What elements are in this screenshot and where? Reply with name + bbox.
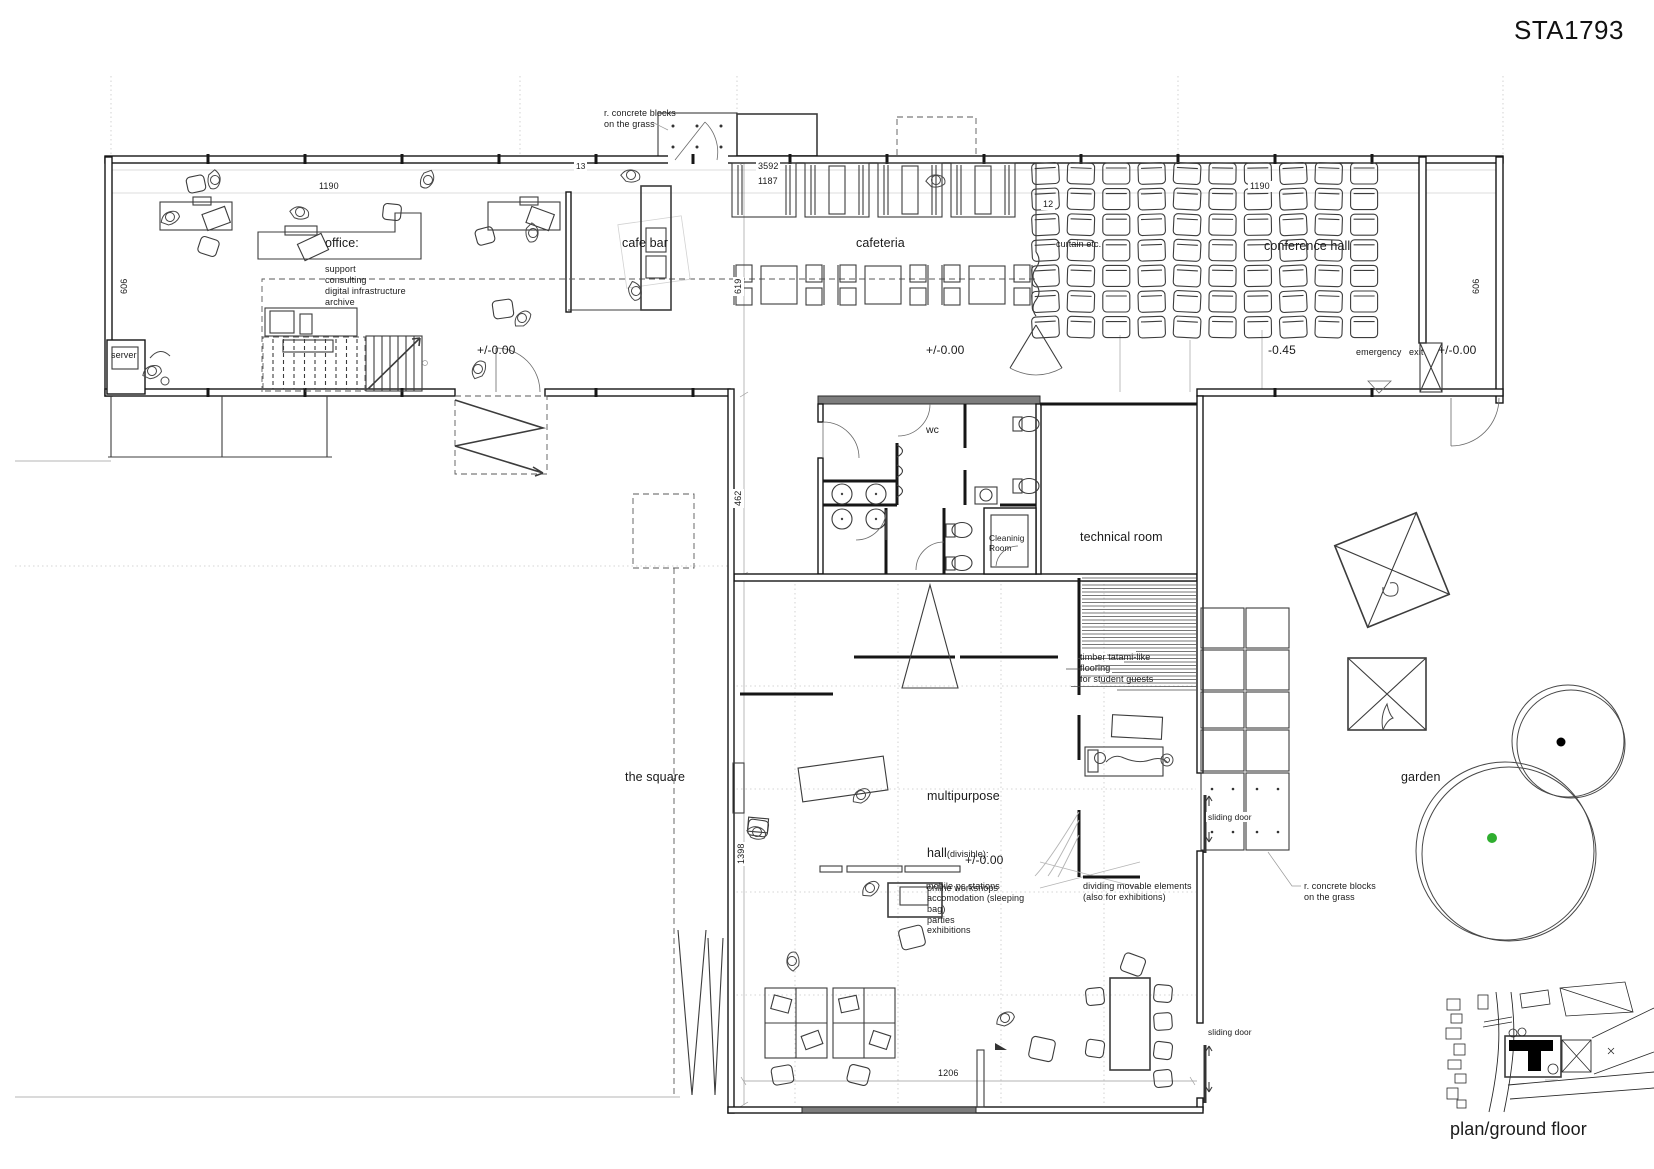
emergency-exit-label: emergency exit bbox=[1356, 347, 1423, 358]
cafeteria-level-label: +/-0.00 bbox=[926, 343, 964, 358]
tree-large bbox=[1416, 762, 1596, 941]
person-figure bbox=[859, 879, 882, 900]
dim-cafeteria-depth: 619 bbox=[733, 277, 744, 296]
office-copier bbox=[265, 308, 357, 352]
stairs bbox=[263, 336, 428, 391]
cafeteria-name-label: cafeteria bbox=[856, 236, 905, 251]
dim-entry-gap: 13 bbox=[574, 161, 587, 171]
dining-sets bbox=[734, 265, 1032, 305]
pavilion-square bbox=[1348, 658, 1426, 730]
server-label: server bbox=[111, 350, 137, 361]
dim-wc-depth: 462 bbox=[733, 489, 744, 508]
dim-office-width: 1190 bbox=[317, 181, 341, 192]
garden-area bbox=[1201, 513, 1625, 941]
person-figure bbox=[994, 1010, 1017, 1029]
tree-dot-green bbox=[1487, 833, 1497, 843]
cafebar-name-label: cafe bar bbox=[622, 236, 668, 251]
hall-walls bbox=[728, 389, 1212, 1113]
square-name-label: the square bbox=[625, 770, 685, 785]
person-figure bbox=[288, 204, 310, 221]
floor-plan-drawing bbox=[0, 0, 1654, 1169]
person-figure bbox=[620, 168, 641, 183]
people bbox=[141, 168, 1016, 1029]
office-level-label: +/-0.00 bbox=[477, 343, 515, 358]
office-functions-label: support consulting digital infrastructur… bbox=[325, 264, 406, 308]
desk-cluster-a bbox=[765, 988, 827, 1058]
drawing-title: STA1793 bbox=[1514, 15, 1624, 47]
concrete-blocks-right-label: r. concrete blocks on the grass bbox=[1304, 881, 1376, 903]
garden-name-label: garden bbox=[1401, 770, 1441, 785]
meeting-table bbox=[1110, 978, 1150, 1070]
site-building-footprint bbox=[1509, 1040, 1553, 1071]
wc-name-label: wc bbox=[926, 424, 939, 437]
concrete-blocks-top-label: r. concrete blocks on the grass bbox=[604, 108, 676, 130]
dim-conference-gap: 12 bbox=[1041, 199, 1055, 210]
drawing-caption: plan/ground floor bbox=[1450, 1119, 1587, 1141]
wc-block bbox=[734, 396, 1197, 581]
dim-conference-depth: 606 bbox=[1471, 277, 1482, 296]
square-boundary bbox=[633, 494, 723, 1097]
movable-element-sweep bbox=[1035, 812, 1140, 888]
top-wing-walls bbox=[105, 154, 1503, 403]
hall-name-line1: multipurpose bbox=[927, 789, 1024, 804]
person-figure bbox=[850, 786, 873, 806]
server-room bbox=[107, 340, 170, 394]
technical-room-label: technical room bbox=[1080, 530, 1163, 545]
tree-dot-black bbox=[1557, 738, 1566, 747]
stairs-dashed-treads bbox=[273, 339, 357, 389]
office-name-label: office: bbox=[325, 236, 359, 251]
dim-conference-width: 1190 bbox=[1248, 181, 1272, 192]
entrance-vestibule bbox=[455, 396, 547, 476]
tree-small bbox=[1512, 685, 1625, 798]
curtain-label: curtain etc. bbox=[1056, 239, 1101, 250]
cleaning-room-label: Cleaninig Room bbox=[989, 533, 1025, 553]
site-pavilion bbox=[1562, 1040, 1591, 1072]
conference-level-label: -0.45 bbox=[1268, 343, 1296, 358]
grid-generated bbox=[111, 76, 1503, 1104]
pc-stations-label: mobile pc stations bbox=[926, 881, 1000, 892]
desk-cluster-b bbox=[833, 988, 895, 1058]
dim-cafeteria-width: 3592 bbox=[756, 161, 780, 172]
person-figure bbox=[206, 169, 221, 190]
office-desk-right bbox=[488, 197, 560, 231]
pavilion-rotated bbox=[1335, 513, 1450, 628]
dividers-note-label: dividing movable elements (also for exhi… bbox=[1083, 881, 1192, 903]
dim-office-depth: 606 bbox=[119, 277, 130, 296]
person-figure bbox=[417, 168, 437, 191]
person-figure bbox=[511, 308, 534, 330]
person-figure bbox=[786, 951, 800, 971]
hall-name-line2: hall bbox=[927, 846, 947, 860]
person-figure bbox=[469, 359, 489, 382]
person-figure bbox=[525, 222, 539, 242]
dim-cafeteria-width2: 1187 bbox=[756, 176, 780, 187]
office-desk-left bbox=[160, 197, 232, 231]
conference-name-label: conference hall bbox=[1264, 239, 1350, 254]
sleeping-area bbox=[1085, 715, 1173, 776]
dim-hall-depth: 1398 bbox=[736, 842, 747, 866]
exit-level-label: +/-0.00 bbox=[1438, 343, 1476, 358]
person-figure bbox=[159, 209, 181, 227]
sliding-door-lower-label: sliding door bbox=[1206, 1027, 1254, 1037]
floor-plan-canvas: STA1793 plan/ground floor office: suppor… bbox=[0, 0, 1654, 1169]
entrance-porch bbox=[652, 113, 976, 157]
dim-hall-width: 1206 bbox=[936, 1068, 960, 1079]
hall-furniture bbox=[186, 174, 1173, 1107]
tatami-note-label: timber tatami-like flooring for student … bbox=[1080, 652, 1153, 685]
office-colonnade bbox=[108, 396, 332, 457]
sliding-door-upper-label: sliding door bbox=[1206, 812, 1254, 822]
hall-level-label: +/-0.00 bbox=[965, 853, 1003, 868]
site-plan bbox=[1446, 982, 1654, 1112]
